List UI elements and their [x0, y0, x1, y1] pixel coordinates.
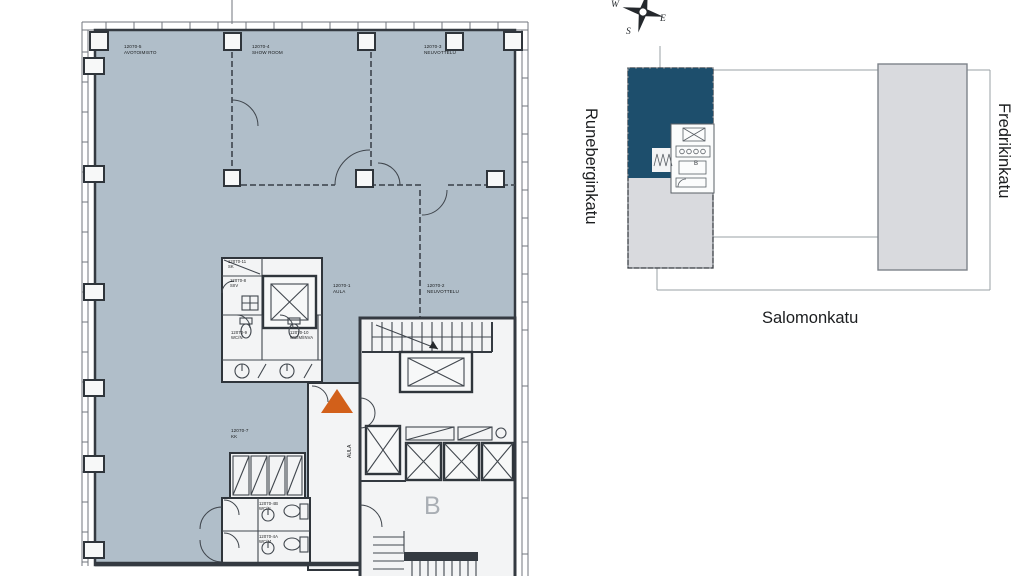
room-label-neuvottelu-2: 12070-2NEUVOTTELU [427, 283, 459, 294]
keymap-core [671, 124, 714, 193]
room-label-wc-n: 12070-9WC/N [231, 330, 247, 340]
room-label-avotoimisto: 12070-5AVOTOIMISTO [124, 44, 157, 55]
room-label-aula: 12070-1AULA [333, 283, 351, 294]
floorplan-drawing [0, 0, 1024, 576]
keymap-core-label-b: B [694, 161, 698, 167]
room-label-kk: 12070-7KK [231, 428, 249, 439]
room-label-showroom: 12070-4SHOW ROOM [252, 44, 283, 55]
keymap [618, 0, 990, 290]
room-label-sk: 12070-11SK [228, 259, 246, 269]
street-label-fredrikinkatu: Fredrikinkatu [994, 103, 1013, 198]
room-label-neuvottelu-3: 12070-3NEUVOTTELU [424, 44, 456, 55]
keymap-neighbor-building [878, 64, 967, 270]
entrance-vestibule [308, 383, 360, 570]
kitchenette [230, 453, 305, 498]
compass-south-label: S [626, 27, 631, 37]
room-label-wc-m-inva: 12070-10WC/M/INVA [290, 330, 313, 340]
room-label-wc-n-lower: 12070-4BWC/N [259, 501, 278, 511]
room-label-siiv: 12070-8SIIV [230, 278, 246, 288]
corridor-label-aula: AULA [347, 445, 353, 458]
core-label-b: B [424, 492, 441, 521]
compass-east-label: E [660, 14, 666, 24]
compass-west-label: W [611, 0, 619, 10]
street-label-runeberginkatu: Runeberginkatu [581, 108, 600, 225]
room-label-wc-m-lower: 12070-4AWC/M [259, 534, 278, 544]
wc-core-cluster [222, 258, 322, 382]
street-label-salomonkatu: Salomonkatu [762, 309, 858, 328]
building-core [360, 318, 515, 576]
